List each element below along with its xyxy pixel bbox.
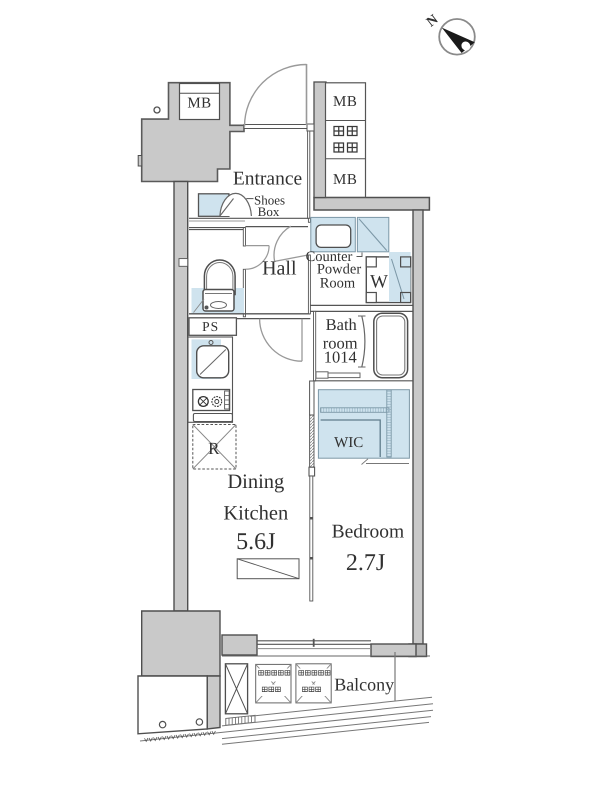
svg-text:Bath: Bath xyxy=(326,315,358,334)
svg-text:2.7J: 2.7J xyxy=(346,550,385,576)
svg-text:1014: 1014 xyxy=(324,348,357,367)
svg-text:5.6J: 5.6J xyxy=(236,529,275,555)
svg-text:Dining: Dining xyxy=(227,471,284,493)
svg-text:Entrance: Entrance xyxy=(233,169,302,190)
svg-text:MB: MB xyxy=(187,96,211,112)
svg-text:Balcony: Balcony xyxy=(334,675,394,695)
svg-text:Bedroom: Bedroom xyxy=(332,522,405,543)
svg-text:MB: MB xyxy=(333,172,357,188)
svg-text:MB: MB xyxy=(333,94,357,110)
svg-text:W: W xyxy=(370,272,388,293)
svg-text:WIC: WIC xyxy=(334,435,363,451)
svg-text:Kitchen: Kitchen xyxy=(223,503,288,525)
svg-text:PS: PS xyxy=(202,319,219,334)
svg-text:R: R xyxy=(208,439,220,458)
svg-text:Box: Box xyxy=(258,204,280,219)
svg-text:Room: Room xyxy=(320,276,356,292)
